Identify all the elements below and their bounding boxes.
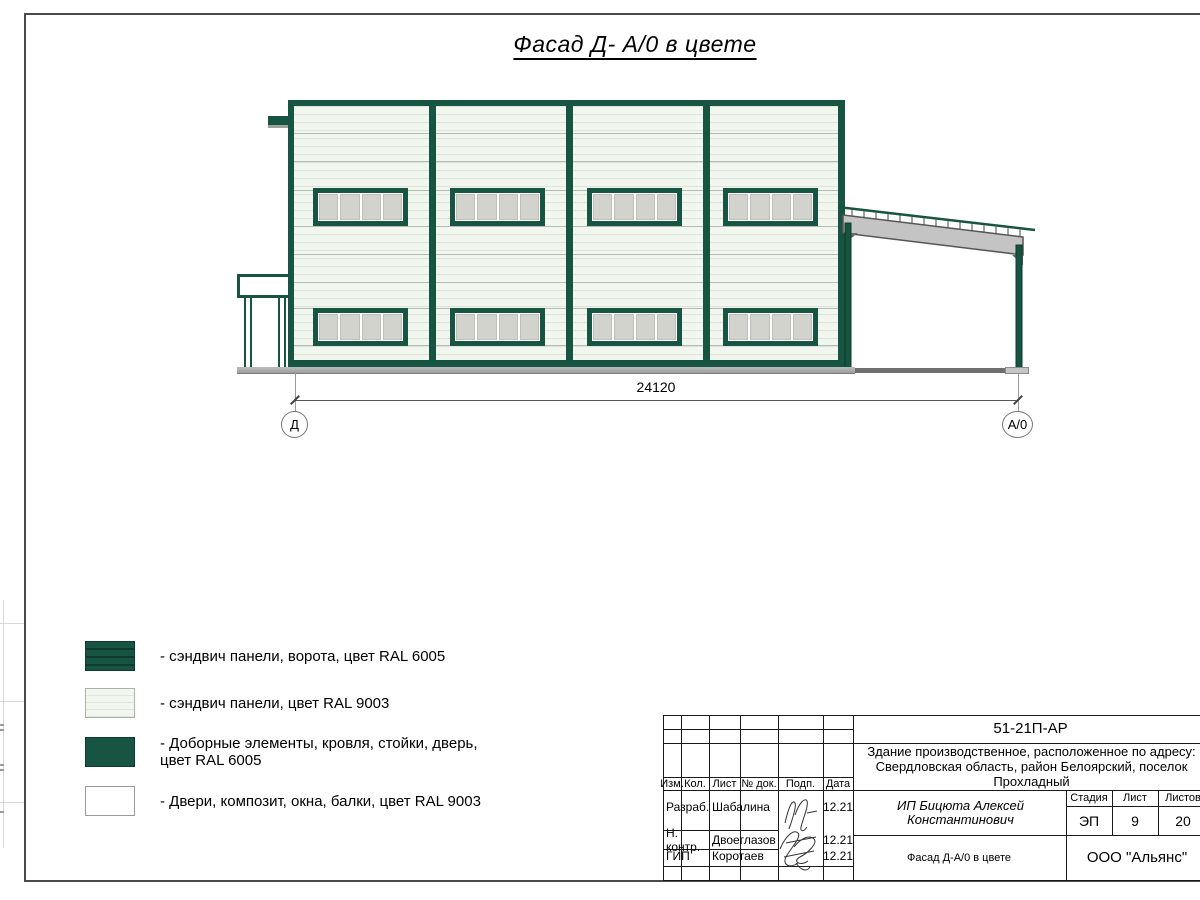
ground-strip — [237, 367, 855, 374]
tb-sheets-label: Листов — [1158, 791, 1200, 805]
window-pane — [772, 194, 791, 220]
window-pane — [340, 314, 359, 340]
tb-role-nkontr: Н. контр. — [666, 833, 714, 847]
window-pane — [793, 194, 812, 220]
lean-to-canopy — [830, 195, 1045, 380]
window — [723, 308, 818, 346]
tb-sheet-label: Лист — [1112, 791, 1158, 805]
roof-ledge-shadow — [268, 125, 290, 128]
porch-column-rear — [278, 298, 286, 368]
window-pane — [657, 314, 676, 340]
tb-role-razrab: Разраб. — [666, 800, 711, 814]
window-pane — [477, 194, 496, 220]
sheet-border-top — [24, 13, 1200, 15]
window-pane — [362, 314, 381, 340]
margin-line — [0, 802, 24, 803]
window-pane — [499, 194, 518, 220]
dimension-value: 24120 — [600, 379, 712, 395]
window-glazing — [318, 313, 403, 341]
legend-swatch-ral9003-white — [85, 786, 135, 816]
legend-item-trim: - Доборные элементы, кровля, стойки, две… — [85, 735, 490, 769]
window-pane — [614, 194, 633, 220]
tb-role-gip: ГИП — [666, 849, 711, 863]
window-pane — [636, 194, 655, 220]
porch-canopy — [237, 274, 291, 298]
tb-col-podp: Подп. — [778, 777, 823, 790]
margin-text-fragment — [0, 724, 4, 726]
margin-line — [0, 623, 24, 624]
window-pane — [593, 314, 612, 340]
window-pane — [456, 314, 475, 340]
signature-nkontr-gip — [776, 823, 822, 875]
margin-line — [0, 701, 24, 702]
legend-item-doors: - Двери, композит, окна, балки, цвет RAL… — [85, 786, 490, 816]
window-pane — [319, 194, 338, 220]
facade-frame — [288, 100, 845, 368]
window-glazing — [318, 193, 403, 221]
margin-text-fragment — [0, 729, 4, 731]
tb-name-gip: Коротаев — [712, 849, 777, 863]
window-pane — [319, 314, 338, 340]
tb-client: ИП Бицюта Алексей Константинович — [873, 793, 1048, 833]
window-pane — [793, 314, 812, 340]
window-pane — [499, 314, 518, 340]
window-pane — [750, 314, 769, 340]
legend-label: - сэндвич панели, цвет RAL 9003 — [160, 695, 490, 712]
drawing-title: Фасад Д- А/0 в цвете — [380, 31, 890, 58]
facade-mullion — [703, 106, 710, 360]
window — [313, 188, 408, 226]
axis-marker-right: А/0 — [1002, 411, 1033, 438]
tb-col-list: Лист — [709, 777, 740, 790]
window-glazing — [592, 193, 677, 221]
window — [723, 188, 818, 226]
window — [587, 188, 682, 226]
window — [450, 308, 545, 346]
axis-label-right: А/0 — [1008, 417, 1028, 432]
window — [587, 308, 682, 346]
window-pane — [729, 314, 748, 340]
window-pane — [772, 314, 791, 340]
canopy-post-left — [845, 223, 851, 368]
ground-pad-right — [1005, 367, 1029, 374]
window-pane — [636, 314, 655, 340]
tb-name-razrab: Шабалина — [712, 800, 777, 814]
tb-doc-code: 51-21П-АР — [853, 717, 1200, 741]
tb-col-ndok: № док. — [740, 777, 778, 790]
tb-name-nkontr: Двоеглазов — [712, 833, 778, 847]
canopy-post-right — [1016, 245, 1022, 368]
margin-text-fragment — [0, 769, 4, 771]
window-pane — [750, 194, 769, 220]
legend-swatch-ral6005-panels — [85, 641, 135, 671]
window-pane — [383, 314, 402, 340]
dimension-line — [295, 400, 1019, 401]
tb-date-razrab: 12.21 — [823, 800, 853, 814]
margin-text-fragment — [0, 811, 4, 813]
legend-item-gates: - сэндвич панели, ворота, цвет RAL 6005 — [85, 641, 490, 671]
ground-strip-canopy — [855, 368, 1007, 373]
window-pane — [614, 314, 633, 340]
tb-stage-label: Стадия — [1066, 791, 1112, 805]
window-glazing — [455, 193, 540, 221]
margin-text-fragment — [0, 764, 4, 766]
legend-label: - сэндвич панели, ворота, цвет RAL 6005 — [160, 648, 490, 665]
tb-sheets-value: 20 — [1158, 807, 1200, 834]
window-pane — [520, 194, 539, 220]
tb-col-kol: Кол. — [681, 777, 709, 790]
window-pane — [456, 194, 475, 220]
tb-date-gip: 12.21 — [823, 849, 853, 863]
window-pane — [362, 194, 381, 220]
tb-sheet-value: 9 — [1112, 807, 1158, 834]
title-block: Изм. Кол. Лист № док. Подп. Дата Разраб.… — [663, 715, 1200, 881]
tb-date-nkontr: 12.21 — [823, 833, 853, 847]
extension-line-right — [1018, 374, 1019, 412]
facade-mullion — [429, 106, 436, 360]
legend-swatch-ral9003-panels — [85, 688, 135, 718]
window-pane — [593, 194, 612, 220]
tb-project: Здание производственное, расположенное п… — [859, 744, 1200, 789]
window-pane — [520, 314, 539, 340]
window — [450, 188, 545, 226]
tb-drawing-title: Фасад Д-А/0 в цвете — [859, 840, 1059, 876]
window-pane — [657, 194, 676, 220]
facade-mullion — [566, 106, 573, 360]
window — [313, 308, 408, 346]
window-glazing — [728, 313, 813, 341]
window-pane — [340, 194, 359, 220]
porch-column-front — [244, 298, 252, 368]
axis-marker-left: Д — [281, 411, 308, 438]
legend-item-panels: - сэндвич панели, цвет RAL 9003 — [85, 688, 490, 718]
facade-wall — [294, 106, 838, 360]
canopy-beam — [843, 215, 1023, 255]
tb-stage-value: ЭП — [1066, 807, 1112, 834]
window-pane — [477, 314, 496, 340]
axis-label-left: Д — [290, 417, 299, 432]
window-glazing — [592, 313, 677, 341]
window-glazing — [455, 313, 540, 341]
legend-label: - Доборные элементы, кровля, стойки, две… — [160, 735, 490, 752]
extension-line-left — [295, 372, 296, 412]
tb-col-data: Дата — [823, 777, 853, 790]
sheet-border-left — [24, 13, 26, 882]
tb-company: ООО "Альянс" — [1066, 840, 1200, 876]
legend-swatch-ral6005-solid — [85, 737, 135, 767]
window-glazing — [728, 193, 813, 221]
tb-col-izm: Изм. — [663, 777, 681, 790]
window-pane — [383, 194, 402, 220]
roof-ledge — [268, 116, 290, 125]
legend-label: - Двери, композит, окна, балки, цвет RAL… — [160, 793, 490, 810]
window-pane — [729, 194, 748, 220]
